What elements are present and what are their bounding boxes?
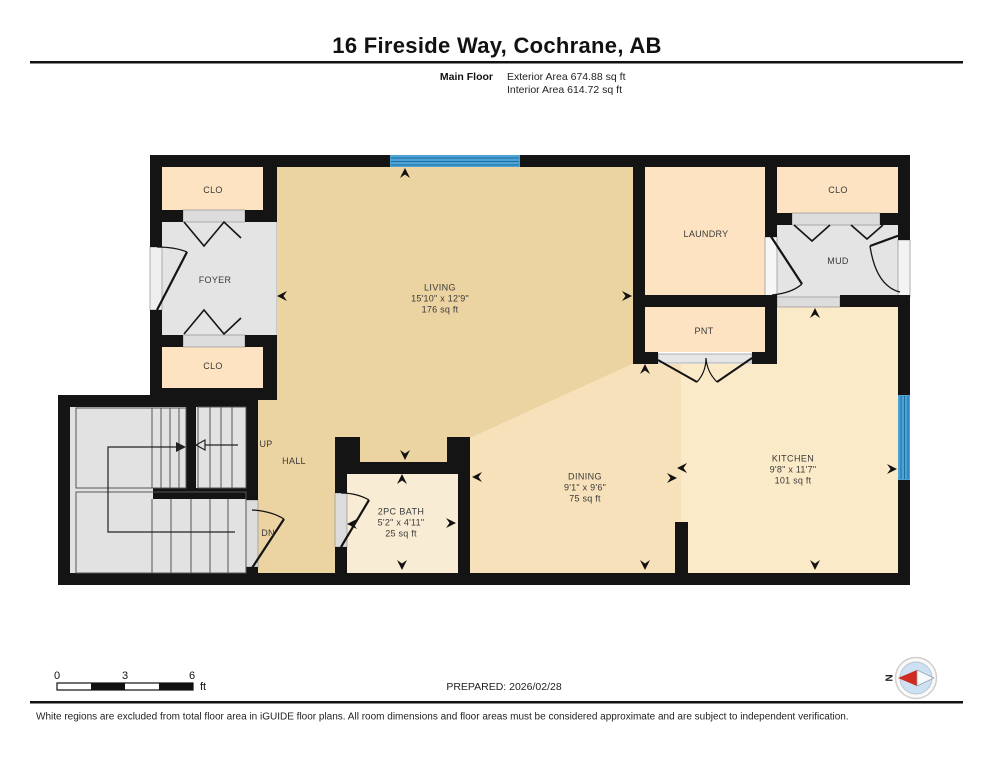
hall-label: HALL: [282, 456, 306, 466]
dn-label: DN: [261, 528, 275, 538]
floor-plan-svg: [0, 0, 993, 768]
scale-three: 3: [122, 670, 128, 682]
scale-six: 6: [189, 670, 195, 682]
up-label: UP: [259, 439, 272, 449]
closet-bottom-left-label: CLO: [203, 361, 222, 371]
bath-label: 2PC BATH 5'2" x 4'11" 25 sq ft: [378, 507, 425, 540]
pantry-label: PNT: [695, 326, 714, 336]
closet-top-left-label: CLO: [203, 185, 222, 195]
disclaimer-text: White regions are excluded from total fl…: [36, 712, 849, 723]
kitchen-label: KITCHEN 9'8" x 11'7" 101 sq ft: [770, 454, 817, 487]
compass-north-label: N: [883, 674, 894, 681]
living-label: LIVING 15'10" x 12'9" 176 sq ft: [411, 283, 469, 316]
footer-divider: [30, 701, 963, 704]
scale-bar: [57, 683, 193, 690]
exterior-area: Exterior Area 674.88 sq ft: [507, 71, 625, 83]
window-kitchen-right: [898, 395, 910, 480]
prepared-date: PREPARED: 2026/02/28: [446, 681, 561, 693]
floor-label: Main Floor: [440, 71, 493, 83]
scale-zero: 0: [54, 670, 60, 682]
floorplan-page: 16 Fireside Way, Cochrane, AB Main Floor…: [0, 0, 993, 768]
foyer-label: FOYER: [199, 275, 232, 285]
window-living-top: [390, 155, 520, 167]
header-divider: [30, 61, 963, 64]
dining-label: DINING 9'1" x 9'6" 75 sq ft: [564, 472, 606, 505]
page-title: 16 Fireside Way, Cochrane, AB: [332, 33, 661, 59]
laundry-label: LAUNDRY: [684, 229, 729, 239]
interior-area: Interior Area 614.72 sq ft: [507, 84, 622, 96]
scale-unit: ft: [200, 681, 206, 693]
closet-top-right-label: CLO: [828, 185, 847, 195]
compass-icon: [896, 658, 937, 699]
mud-label: MUD: [827, 256, 848, 266]
